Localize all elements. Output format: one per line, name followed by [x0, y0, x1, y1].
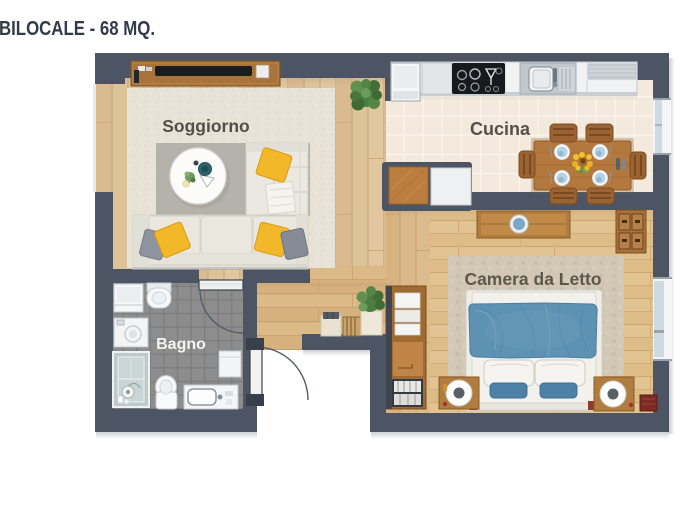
svg-text:Cucina: Cucina — [470, 119, 531, 139]
svg-text:Camera da Letto: Camera da Letto — [464, 269, 601, 289]
svg-text:BILOCALE - 68 MQ.: BILOCALE - 68 MQ. — [0, 18, 155, 40]
svg-text:Soggiorno: Soggiorno — [162, 116, 249, 136]
svg-text:Bagno: Bagno — [156, 336, 206, 353]
